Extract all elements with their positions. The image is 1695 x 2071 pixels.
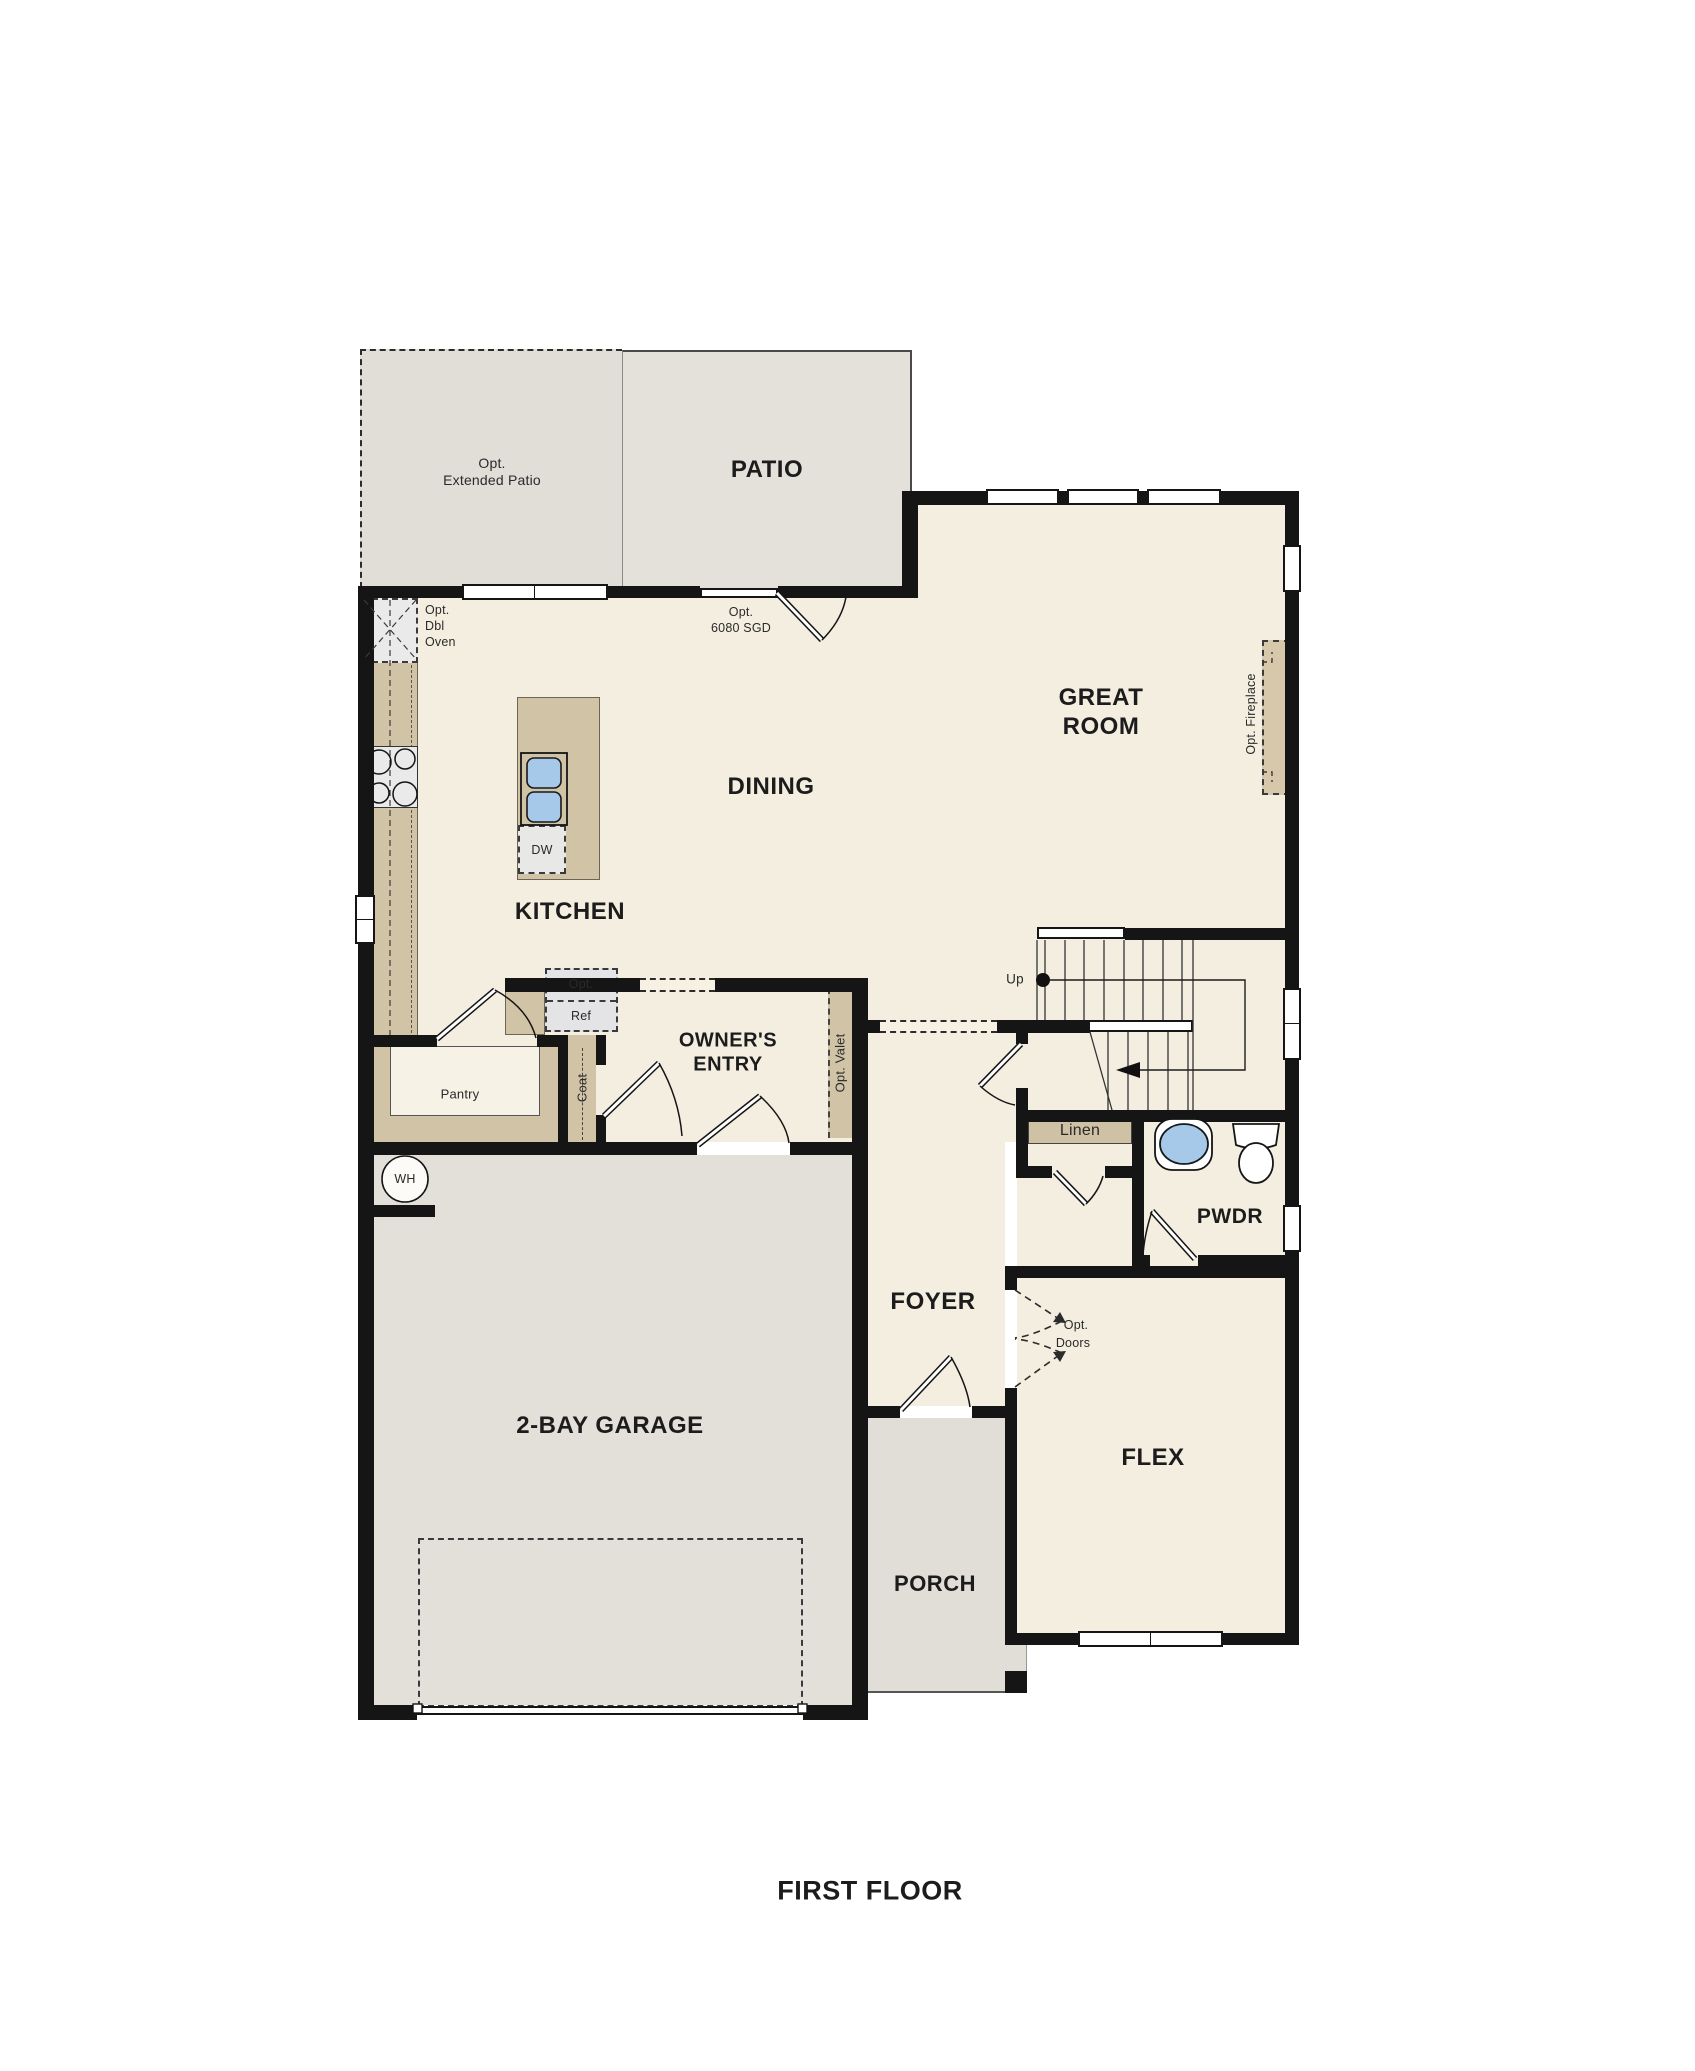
dbl-oven-label-3: Oven: [425, 635, 456, 649]
understair-door: [980, 1044, 1021, 1105]
great-room-label-2: ROOM: [1063, 713, 1140, 741]
plan-linework: [0, 0, 1695, 2071]
opt-fireplace-label: Opt. Fireplace: [1244, 673, 1258, 754]
pwdr-sink: [1155, 1119, 1212, 1170]
up-label: Up: [1006, 972, 1024, 987]
pwdr-door: [1143, 1211, 1195, 1259]
linen-label: Linen: [1060, 1122, 1100, 1140]
pantry-door: [437, 990, 536, 1039]
fireplace-notches: [1262, 652, 1272, 782]
stairs-walk-line: [1036, 973, 1245, 1078]
patio-label: PATIO: [731, 456, 803, 484]
great-room-label-1: GREAT: [1059, 684, 1144, 712]
dining-label: DINING: [728, 773, 815, 801]
cooktop-burners: [367, 749, 417, 806]
island-sink: [521, 753, 567, 825]
sliding-glass-door: [777, 593, 846, 640]
dw-label: DW: [531, 843, 552, 857]
double-oven-x: [364, 600, 416, 1035]
dbl-oven-label-1: Opt.: [425, 603, 449, 617]
opt-doors-label-1: Opt.: [1064, 1318, 1088, 1332]
owners-entry-door: [604, 1063, 682, 1136]
ext-patio-label-2: Extended Patio: [443, 472, 541, 488]
owners-entry-label-1: OWNER'S: [679, 1030, 777, 1053]
garage-entry-door: [698, 1096, 789, 1145]
owners-entry-label-2: ENTRY: [693, 1054, 763, 1077]
wh-label: WH: [394, 1172, 415, 1186]
first-floor-title: FIRST FLOOR: [777, 1876, 962, 1907]
flex-label: FLEX: [1121, 1444, 1184, 1472]
porch-label: PORCH: [894, 1571, 976, 1597]
opt-ref-label-2: Ref: [571, 1009, 591, 1023]
opt-ref-label-1: Opt.: [569, 977, 593, 991]
opt-valet-label: Opt. Valet: [833, 1034, 848, 1093]
pwdr-label: PWDR: [1197, 1205, 1263, 1229]
foyer-label: FOYER: [890, 1288, 975, 1316]
opt-doors-label-2: Doors: [1056, 1336, 1090, 1350]
floor-plan: PATIO Opt. Extended Patio GREAT ROOM DIN…: [0, 0, 1695, 2071]
linen-door: [1055, 1172, 1103, 1204]
pwdr-toilet: [1233, 1124, 1279, 1183]
garage-label: 2-BAY GARAGE: [516, 1412, 703, 1440]
coat-label: Coat: [575, 1074, 590, 1102]
sgd-label-1: Opt.: [729, 605, 753, 619]
pantry-label: Pantry: [441, 1087, 480, 1102]
dbl-oven-label-2: Dbl: [425, 619, 444, 633]
garage-door-ends: [413, 1704, 807, 1713]
sgd-label-2: 6080 SGD: [711, 621, 771, 635]
front-door: [901, 1357, 970, 1410]
kitchen-label: KITCHEN: [515, 898, 625, 926]
stairs-upper-treads: [1037, 940, 1193, 1110]
ext-patio-label-1: Opt.: [478, 455, 505, 471]
